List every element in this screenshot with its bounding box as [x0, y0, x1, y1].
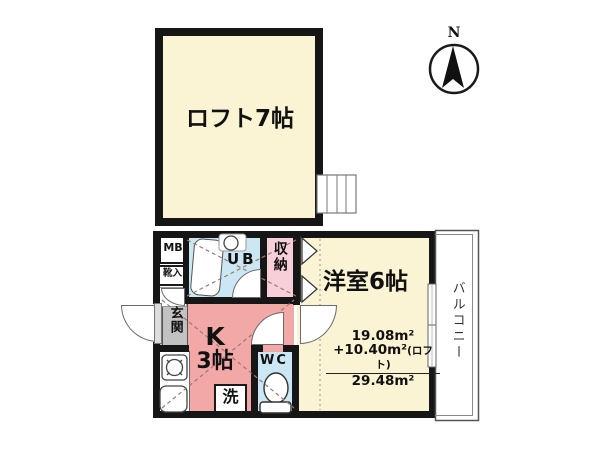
shoe-cabinet-label: 靴入 [158, 269, 187, 279]
kitchen-label: K 3帖 [170, 324, 260, 373]
floor-plan: ロフト7帖 洋室6帖 K 3帖 19.08m² +10.40m²(ロフト) 29… [0, 0, 600, 450]
plan-symbols-layer [0, 0, 600, 450]
area-main: 19.08m² [326, 329, 440, 343]
north-label: N [445, 26, 463, 41]
entrance-label: 玄関 [168, 306, 182, 334]
unit-bath-label: UB [227, 252, 257, 268]
vanity-bowl-icon [219, 234, 246, 251]
area-loft-line: +10.40m²(ロフト) [326, 343, 440, 373]
washer-label: 洗 [214, 389, 247, 406]
western-room-label: 洋室6帖 [303, 270, 428, 294]
balcony-label: バルコニー [450, 281, 464, 361]
storage-label: 収納 [272, 241, 287, 273]
loft-label: ロフト7帖 [160, 107, 320, 131]
ladder-icon [317, 175, 356, 213]
meter-box-label: MB [159, 242, 187, 254]
kitchen-label-line1: K [170, 324, 260, 350]
area-figures: 19.08m² +10.40m²(ロフト) 29.48m² [326, 329, 440, 388]
toilet-icon [260, 373, 291, 413]
kitchen-label-line2: 3帖 [170, 350, 260, 373]
area-total: 29.48m² [326, 374, 440, 388]
entrance-door-leaf-icon [154, 303, 162, 344]
area-loft-add: +10.40m² [333, 342, 407, 358]
toilet-label: WC [257, 354, 291, 368]
north-compass-icon [430, 45, 478, 93]
